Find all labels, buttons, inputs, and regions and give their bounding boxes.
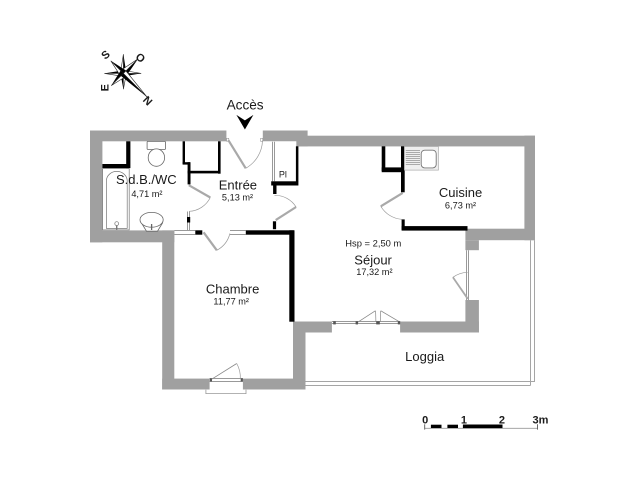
- svg-text:2: 2: [499, 414, 505, 426]
- svg-text:E: E: [100, 84, 112, 91]
- svg-text:Cuisine: Cuisine: [439, 185, 482, 200]
- svg-text:Hsp = 2,50 m: Hsp = 2,50 m: [345, 237, 401, 248]
- svg-text:S.d.B./WC: S.d.B./WC: [116, 172, 177, 187]
- svg-text:Séjour: Séjour: [354, 252, 392, 267]
- svg-text:3m: 3m: [533, 414, 549, 426]
- svg-text:Accès: Accès: [227, 97, 264, 112]
- svg-text:Chambre: Chambre: [206, 282, 259, 297]
- svg-text:1: 1: [461, 414, 467, 426]
- svg-text:0: 0: [422, 414, 428, 426]
- svg-text:11,77 m²: 11,77 m²: [213, 296, 249, 306]
- svg-text:4,71 m²: 4,71 m²: [131, 189, 162, 199]
- svg-text:6,73 m²: 6,73 m²: [445, 201, 476, 211]
- svg-text:Pl: Pl: [279, 169, 287, 179]
- svg-text:5,13 m²: 5,13 m²: [222, 192, 253, 202]
- svg-text:Entrée: Entrée: [219, 177, 257, 192]
- svg-text:Loggia: Loggia: [405, 349, 445, 364]
- svg-text:17,32 m²: 17,32 m²: [356, 267, 392, 277]
